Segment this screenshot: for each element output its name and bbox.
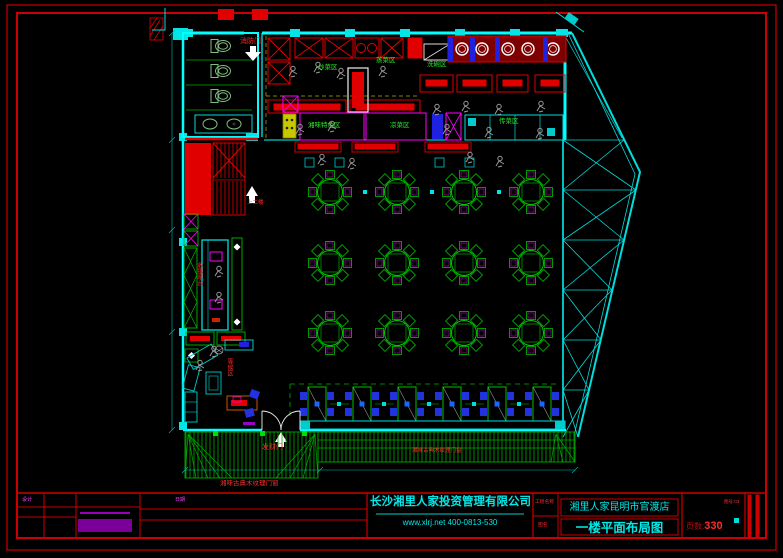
booth-row bbox=[290, 384, 565, 429]
corner-note: 图号:03 bbox=[724, 500, 739, 505]
stairs-up-label: 上二楼 bbox=[247, 201, 264, 207]
project-name: 湘里人家昆明市官渡店 bbox=[561, 503, 678, 513]
plan-walls bbox=[173, 28, 572, 430]
waiting-lounge bbox=[182, 340, 260, 425]
page-number-label: 页数: bbox=[686, 522, 704, 531]
waiting-area-label: 等候区 bbox=[226, 358, 232, 376]
dishwash-zone-label: 洗碗区 bbox=[427, 62, 447, 69]
floor-plan-drawing bbox=[0, 0, 783, 558]
field-drawing-label: 图名 bbox=[538, 524, 548, 529]
storefront-glazing bbox=[563, 33, 640, 437]
cold-zone-label: 凉菜区 bbox=[390, 123, 410, 130]
steam-zone-label: 蒸菜区 bbox=[376, 58, 396, 65]
company-contact: www.xlrj.net 400-0813-530 bbox=[370, 519, 530, 527]
page-number: 页数:330 bbox=[686, 521, 723, 532]
sign-right-label: 日期 bbox=[175, 498, 185, 503]
toilet-block bbox=[183, 33, 258, 137]
field-project-label: 工程名称 bbox=[535, 501, 554, 506]
sign-left-label: 设计 bbox=[22, 498, 32, 503]
fire-door-label: 消防门 bbox=[240, 38, 261, 45]
storefront-note-inner: 湘味古典木纹理门窗 bbox=[412, 449, 462, 455]
sheet-frame bbox=[7, 5, 776, 550]
dining-tables bbox=[309, 171, 553, 355]
storefront-note-outer: 湘味古典木纹理门窗 bbox=[220, 481, 279, 488]
wok-zone-label: 炒菜区 bbox=[318, 65, 338, 72]
special-zone-label: 湘味特色区 bbox=[308, 123, 341, 130]
fortune-door-label: 发财门 bbox=[262, 444, 283, 451]
cashier-bar-label: 收银吧台 bbox=[196, 262, 202, 286]
pass-zone-label: 传菜区 bbox=[499, 119, 519, 126]
drawing-name: 一楼平面布局图 bbox=[561, 522, 678, 535]
cad-sheet: 消防门 上二楼 收银吧台 等候区 发财门 炒菜区 蒸菜区 洗碗区 传菜区 湘味特… bbox=[0, 0, 783, 558]
company-name: 长沙湘里人家投资管理有限公司 bbox=[370, 497, 530, 509]
page-number-value: 330 bbox=[704, 520, 722, 532]
cashier-bar bbox=[184, 214, 245, 345]
